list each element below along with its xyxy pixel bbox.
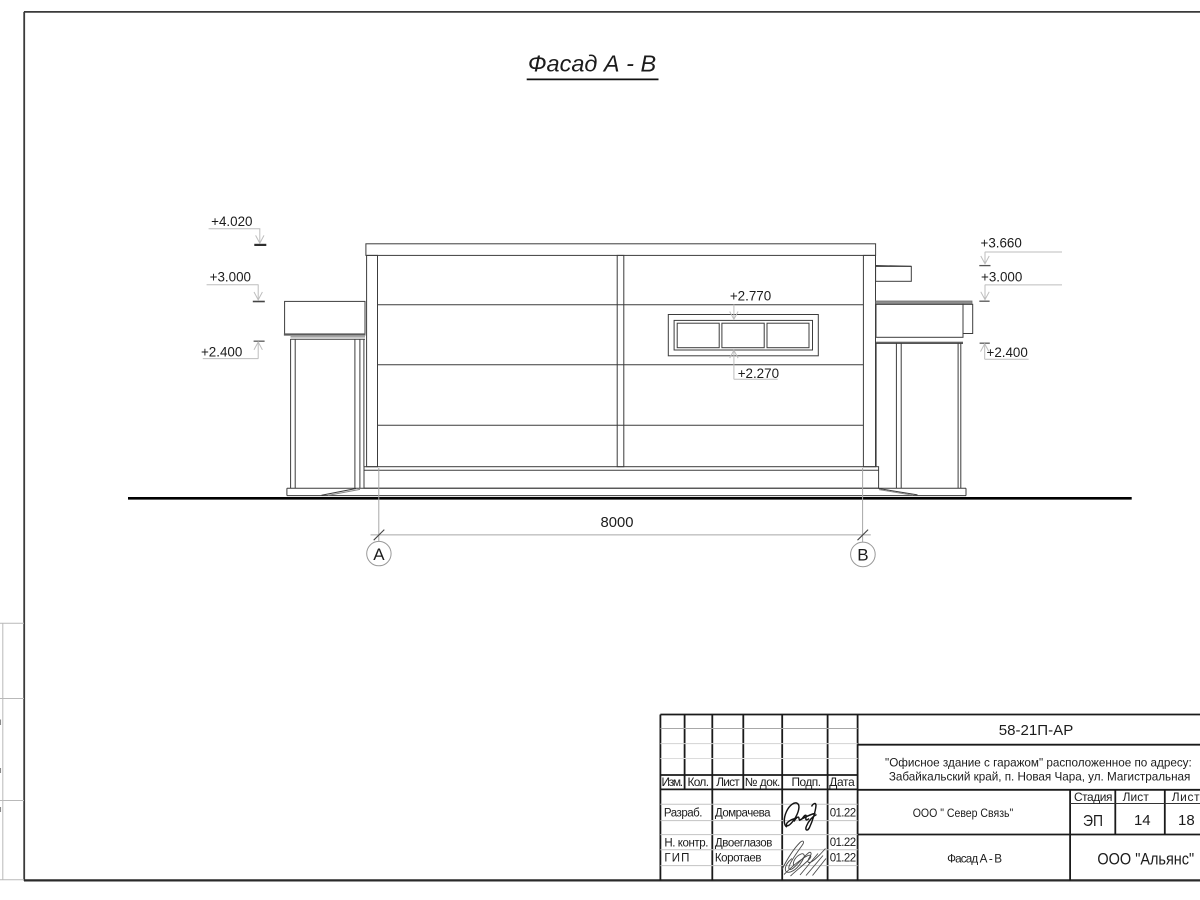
svg-text:Стадия: Стадия [1074,790,1113,804]
svg-text:ЭП: ЭП [1083,813,1103,830]
svg-text:58-21П-АР: 58-21П-АР [999,723,1074,739]
svg-text:"Офисное здание с гаражом" рас: "Офисное здание с гаражом" расположенное… [885,757,1192,770]
svg-text:№ док.: № док. [745,775,781,789]
svg-text:Фасад А - В: Фасад А - В [528,51,656,77]
svg-text:В: В [857,546,868,565]
svg-text:Изм.: Изм. [662,775,684,789]
svg-text:+2.270: +2.270 [738,366,779,381]
svg-text:А: А [373,545,385,564]
svg-text:+2.400: +2.400 [987,345,1028,360]
svg-text:+2.770: +2.770 [730,289,771,304]
svg-text:ООО "Альянс": ООО "Альянс" [1097,851,1194,869]
svg-text:Фасад А - В: Фасад А - В [947,853,1002,866]
svg-text:+3.660: +3.660 [981,236,1022,251]
svg-text:Коротаев: Коротаев [715,853,762,865]
svg-text:8000: 8000 [601,515,634,531]
svg-text:+4.020: +4.020 [211,214,252,229]
svg-text:Домрачева: Домрачева [715,808,771,820]
svg-text:Листов: Листов [1172,790,1200,804]
svg-text:Лист: Лист [716,775,740,789]
svg-text:ООО " Север Связь": ООО " Север Связь" [913,806,1014,820]
svg-text:Подп.: Подп. [792,775,822,789]
svg-text:01.22: 01.22 [830,808,856,820]
svg-text:01.22: 01.22 [830,837,856,849]
svg-text:+3.000: +3.000 [210,269,251,284]
svg-text:Разраб.: Разраб. [664,807,703,819]
svg-text:18: 18 [1178,812,1195,829]
svg-text:Двоеглазов: Двоеглазов [715,837,772,849]
svg-text:Н. контр.: Н. контр. [664,837,708,849]
svg-text:ГИП: ГИП [664,853,689,865]
svg-text:+3.000: +3.000 [981,270,1022,285]
svg-text:14: 14 [1134,812,1151,829]
svg-text:01.22: 01.22 [830,852,856,864]
svg-text:Кол.: Кол. [688,775,710,789]
svg-text:Лист: Лист [1123,790,1150,804]
svg-text:Забайкальский край, п. Новая Ч: Забайкальский край, п. Новая Чара, ул. М… [889,770,1191,783]
svg-text:+2.400: +2.400 [201,345,242,360]
svg-text:Дата: Дата [829,775,855,789]
